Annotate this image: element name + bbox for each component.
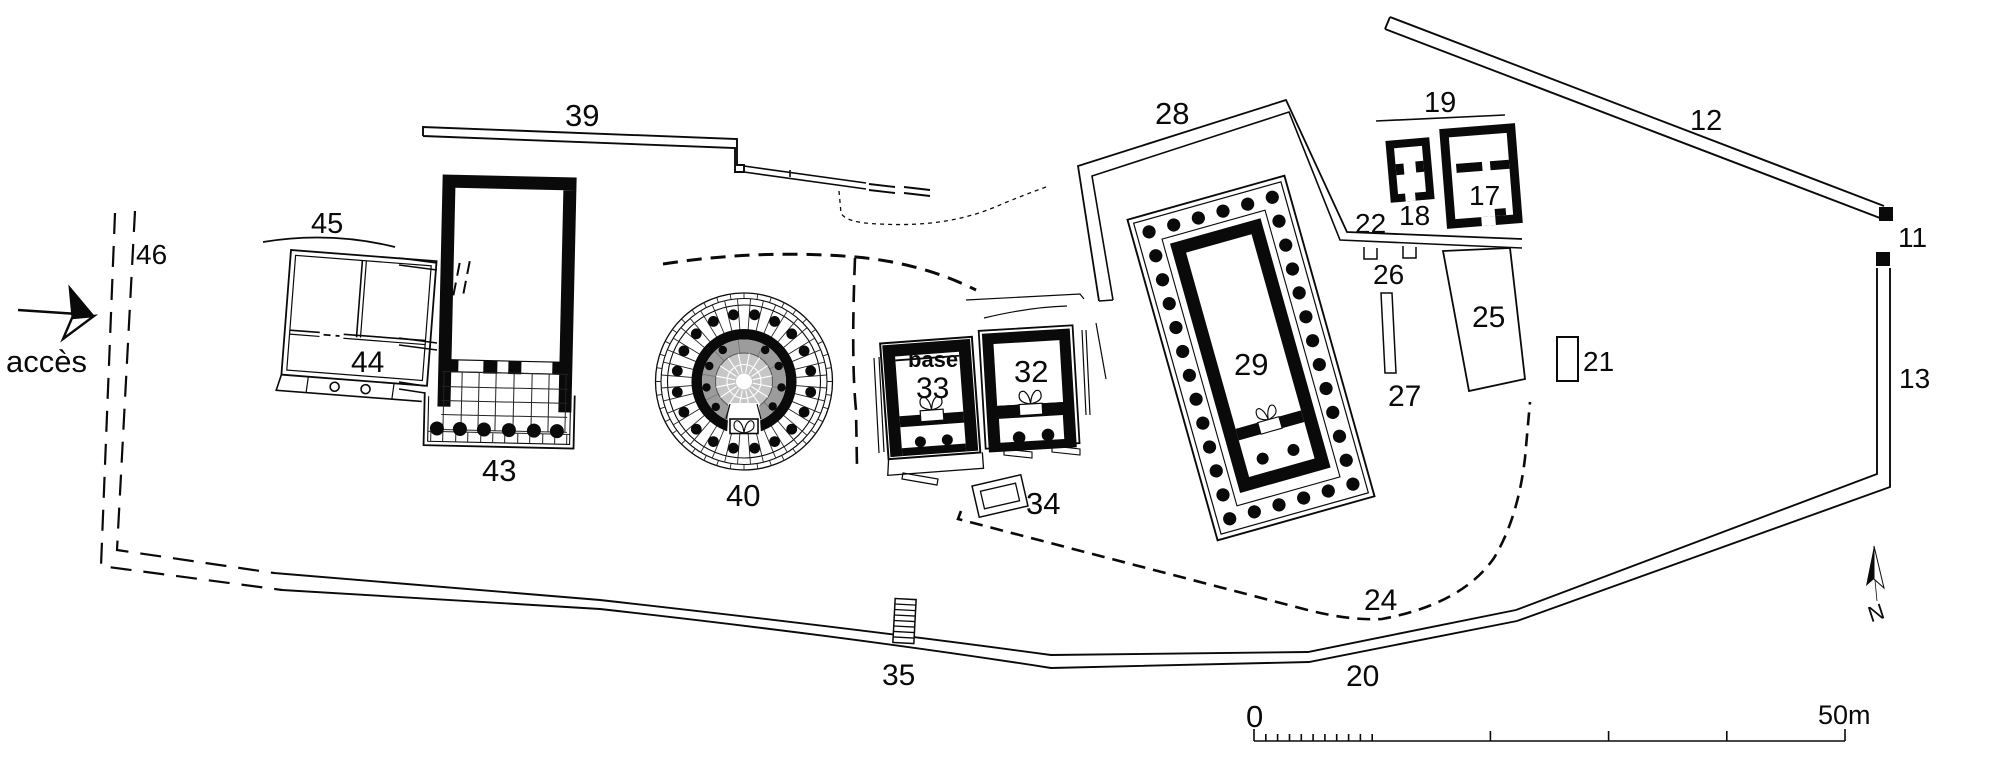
svg-text:25: 25 xyxy=(1472,301,1505,334)
svg-text:12: 12 xyxy=(1690,105,1722,137)
svg-text:32: 32 xyxy=(1014,354,1048,389)
svg-text:33: 33 xyxy=(916,372,949,405)
svg-text:13: 13 xyxy=(1899,363,1930,394)
svg-text:29: 29 xyxy=(1234,347,1268,382)
svg-text:27: 27 xyxy=(1388,380,1421,413)
svg-text:0: 0 xyxy=(1246,699,1263,734)
svg-text:34: 34 xyxy=(1026,486,1060,521)
svg-text:39: 39 xyxy=(565,98,599,133)
svg-text:40: 40 xyxy=(726,478,760,513)
svg-text:17: 17 xyxy=(1469,180,1500,211)
svg-text:24: 24 xyxy=(1364,584,1397,617)
svg-text:46: 46 xyxy=(136,239,167,270)
svg-text:43: 43 xyxy=(482,453,516,488)
svg-text:35: 35 xyxy=(882,659,915,692)
svg-text:19: 19 xyxy=(1424,87,1456,119)
svg-text:22: 22 xyxy=(1355,208,1386,239)
svg-text:50m: 50m xyxy=(1818,700,1871,730)
svg-text:11: 11 xyxy=(1898,222,1927,253)
svg-text:accès: accès xyxy=(6,344,87,379)
svg-text:18: 18 xyxy=(1399,200,1430,231)
svg-text:26: 26 xyxy=(1373,259,1404,290)
svg-text:28: 28 xyxy=(1155,96,1189,131)
svg-text:base: base xyxy=(908,347,958,372)
svg-text:45: 45 xyxy=(311,208,343,240)
svg-text:21: 21 xyxy=(1583,346,1614,377)
svg-text:44: 44 xyxy=(351,346,384,379)
svg-text:20: 20 xyxy=(1346,660,1379,693)
